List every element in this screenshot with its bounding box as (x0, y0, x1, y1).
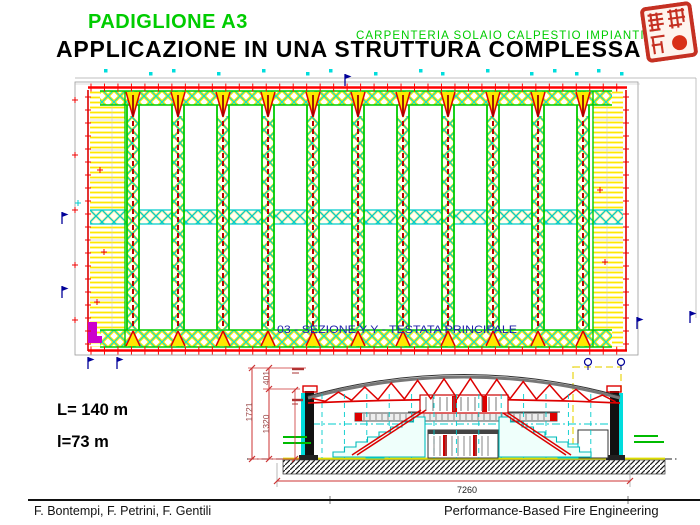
snap-marker (597, 69, 601, 73)
datum-flag-icon (88, 357, 95, 369)
snap-marker (149, 72, 153, 76)
slide-canvas: 03 - SEZIONE Y-Y - TESTATA PRINCIPALE (0, 0, 700, 525)
snap-marker (217, 72, 221, 76)
snap-marker (172, 69, 176, 73)
grid-bubble (618, 359, 625, 366)
lower-box-cap (428, 430, 498, 434)
cad-line (690, 311, 697, 316)
label-width: l=73 m (57, 433, 109, 452)
dim-text-1320: 1320 (261, 414, 271, 433)
snap-marker (620, 72, 624, 76)
truss-column (576, 92, 590, 346)
truss-column (531, 92, 545, 346)
truss-column (306, 92, 320, 346)
plan-caption: 03 - SEZIONE Y-Y - TESTATA PRINCIPALE (277, 324, 517, 336)
slab-end-block (550, 413, 557, 421)
grid-bubble (585, 359, 592, 366)
plan-view: 03 - SEZIONE Y-Y - TESTATA PRINCIPALE (62, 69, 697, 369)
dim-text-7260: 7260 (457, 485, 477, 495)
snap-marker (306, 72, 310, 76)
truss-column (126, 92, 140, 346)
cad-line (117, 357, 124, 362)
snap-marker (553, 69, 557, 73)
snap-marker (486, 69, 490, 73)
right-foundation (606, 455, 625, 460)
datum-flag-icon (62, 286, 69, 298)
truss-column (171, 92, 185, 346)
snap-marker (530, 72, 534, 76)
lower-central-box (428, 430, 498, 458)
dim-text-1721: 1721 (244, 402, 254, 421)
datum-flag-icon (62, 212, 69, 224)
snap-marker (374, 72, 378, 76)
slab-end-block (355, 413, 362, 421)
snap-marker (329, 69, 333, 73)
cad-line (62, 212, 69, 217)
left-foundation (299, 455, 318, 460)
truss-column (486, 92, 500, 346)
snap-marker (262, 69, 266, 73)
left-column-cladding (301, 393, 305, 458)
dim-text-401: 401 (261, 371, 271, 385)
footer-divider (28, 499, 700, 501)
cad-line (62, 286, 69, 291)
snap-marker (104, 69, 108, 73)
elevator-block (88, 322, 97, 343)
truss-column (216, 92, 230, 346)
truss-column (396, 92, 410, 346)
snap-marker (441, 72, 445, 76)
truss-column (441, 92, 455, 346)
cad-line (637, 317, 644, 322)
left-column (305, 391, 314, 458)
datum-flag-icon (117, 357, 124, 369)
section-view: 401 1320 1721 7260 (244, 359, 679, 505)
pavilion-title: PADIGLIONE A3 (88, 11, 248, 34)
datum-flag-icon (690, 311, 697, 323)
label-length: L= 140 m (57, 401, 128, 420)
chinese-seal-stamp-icon (639, 1, 698, 64)
truss-column (351, 92, 365, 346)
truss-column (261, 92, 275, 346)
snap-marker (575, 72, 579, 76)
main-title: APPLICAZIONE IN UNA STRUTTURA COMPLESSA (56, 36, 641, 63)
elevator-block (97, 336, 102, 343)
seal-svg (639, 1, 698, 64)
footer-authors: F. Bontempi, F. Petrini, F. Gentili (34, 504, 211, 518)
cad-line (88, 357, 95, 362)
ground-hatch (283, 460, 665, 474)
snap-marker (419, 69, 423, 73)
footer-brand: Performance-Based Fire Engineering (444, 503, 659, 518)
